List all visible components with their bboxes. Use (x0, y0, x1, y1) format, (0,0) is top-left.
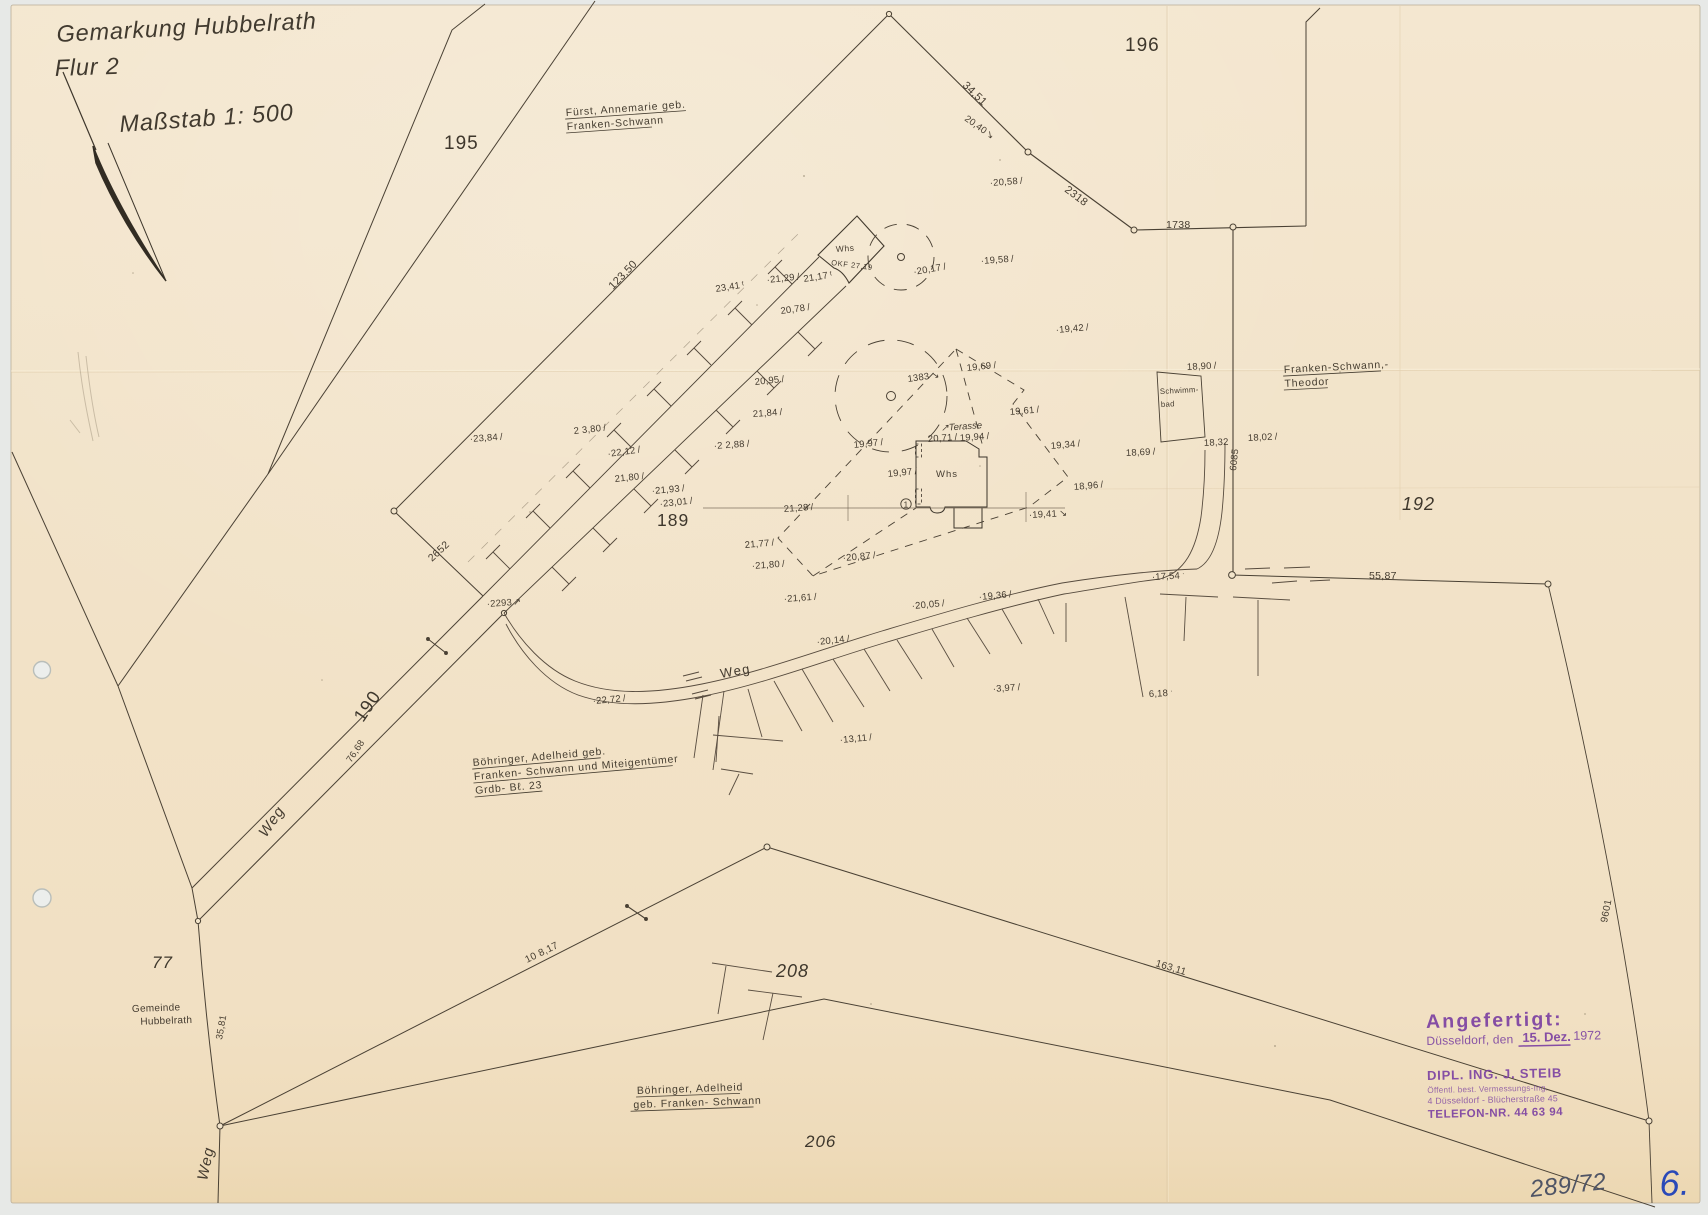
svg-text:206: 206 (804, 1132, 836, 1151)
svg-text:Hubbelrath: Hubbelrath (140, 1015, 192, 1028)
svg-text:189: 189 (657, 510, 689, 530)
svg-text:208: 208 (775, 961, 809, 981)
svg-text:18,32: 18,32 (1204, 437, 1231, 449)
svg-text:Gemeinde: Gemeinde (132, 1002, 181, 1015)
svg-text:Whs: Whs (936, 469, 958, 480)
svg-text:·20,58 /: ·20,58 / (989, 176, 1023, 189)
svg-text:·23,84 /: ·23,84 / (469, 432, 503, 445)
svg-text:55,87: 55,87 (1369, 570, 1397, 582)
svg-text:6,18 ˑ: 6,18 ˑ (1149, 688, 1174, 700)
svg-text:1738: 1738 (1166, 219, 1191, 231)
svg-text:·21,80 /: ·21,80 / (751, 559, 785, 572)
svg-text:20,71 /: 20,71 / (927, 432, 958, 445)
svg-text:18,02 /: 18,02 / (1248, 431, 1278, 444)
svg-text:·19,41 ↘: ·19,41 ↘ (1029, 508, 1068, 521)
svg-text:15. Dez.: 15. Dez. (1522, 1029, 1571, 1045)
svg-text:18,90 /: 18,90 / (1187, 360, 1217, 373)
svg-text:·21,61 /: ·21,61 / (783, 592, 817, 605)
svg-text:Düsseldorf, den: Düsseldorf, den (1426, 1032, 1513, 1048)
svg-text:·3,97 /: ·3,97 / (992, 682, 1020, 695)
svg-text:1972: 1972 (1573, 1028, 1601, 1043)
svg-text:195: 195 (444, 133, 479, 154)
svg-text:DIPL. ING. J. STEIB: DIPL. ING. J. STEIB (1427, 1065, 1562, 1083)
svg-text:bad: bad (1161, 399, 1175, 409)
svg-text:Whs: Whs (835, 243, 854, 254)
svg-text:·17,54 ˑ: ·17,54 ˑ (1152, 570, 1186, 583)
svg-text:21,28 /: 21,28 / (783, 502, 814, 515)
svg-text:77: 77 (152, 953, 173, 972)
svg-text:Flur 2: Flur 2 (54, 53, 120, 81)
svg-text:18,69 /: 18,69 / (1126, 446, 1156, 459)
svg-text:6085: 6085 (1228, 448, 1241, 471)
svg-text:19,94 /: 19,94 / (959, 431, 990, 444)
svg-text:6.: 6. (1658, 1161, 1690, 1204)
svg-text:21,84 /: 21,84 / (752, 407, 783, 420)
svg-text:·19,58 /: ·19,58 / (980, 254, 1014, 267)
svg-text:1: 1 (904, 500, 909, 510)
svg-text:196: 196 (1125, 35, 1160, 56)
svg-text:192: 192 (1402, 494, 1435, 514)
